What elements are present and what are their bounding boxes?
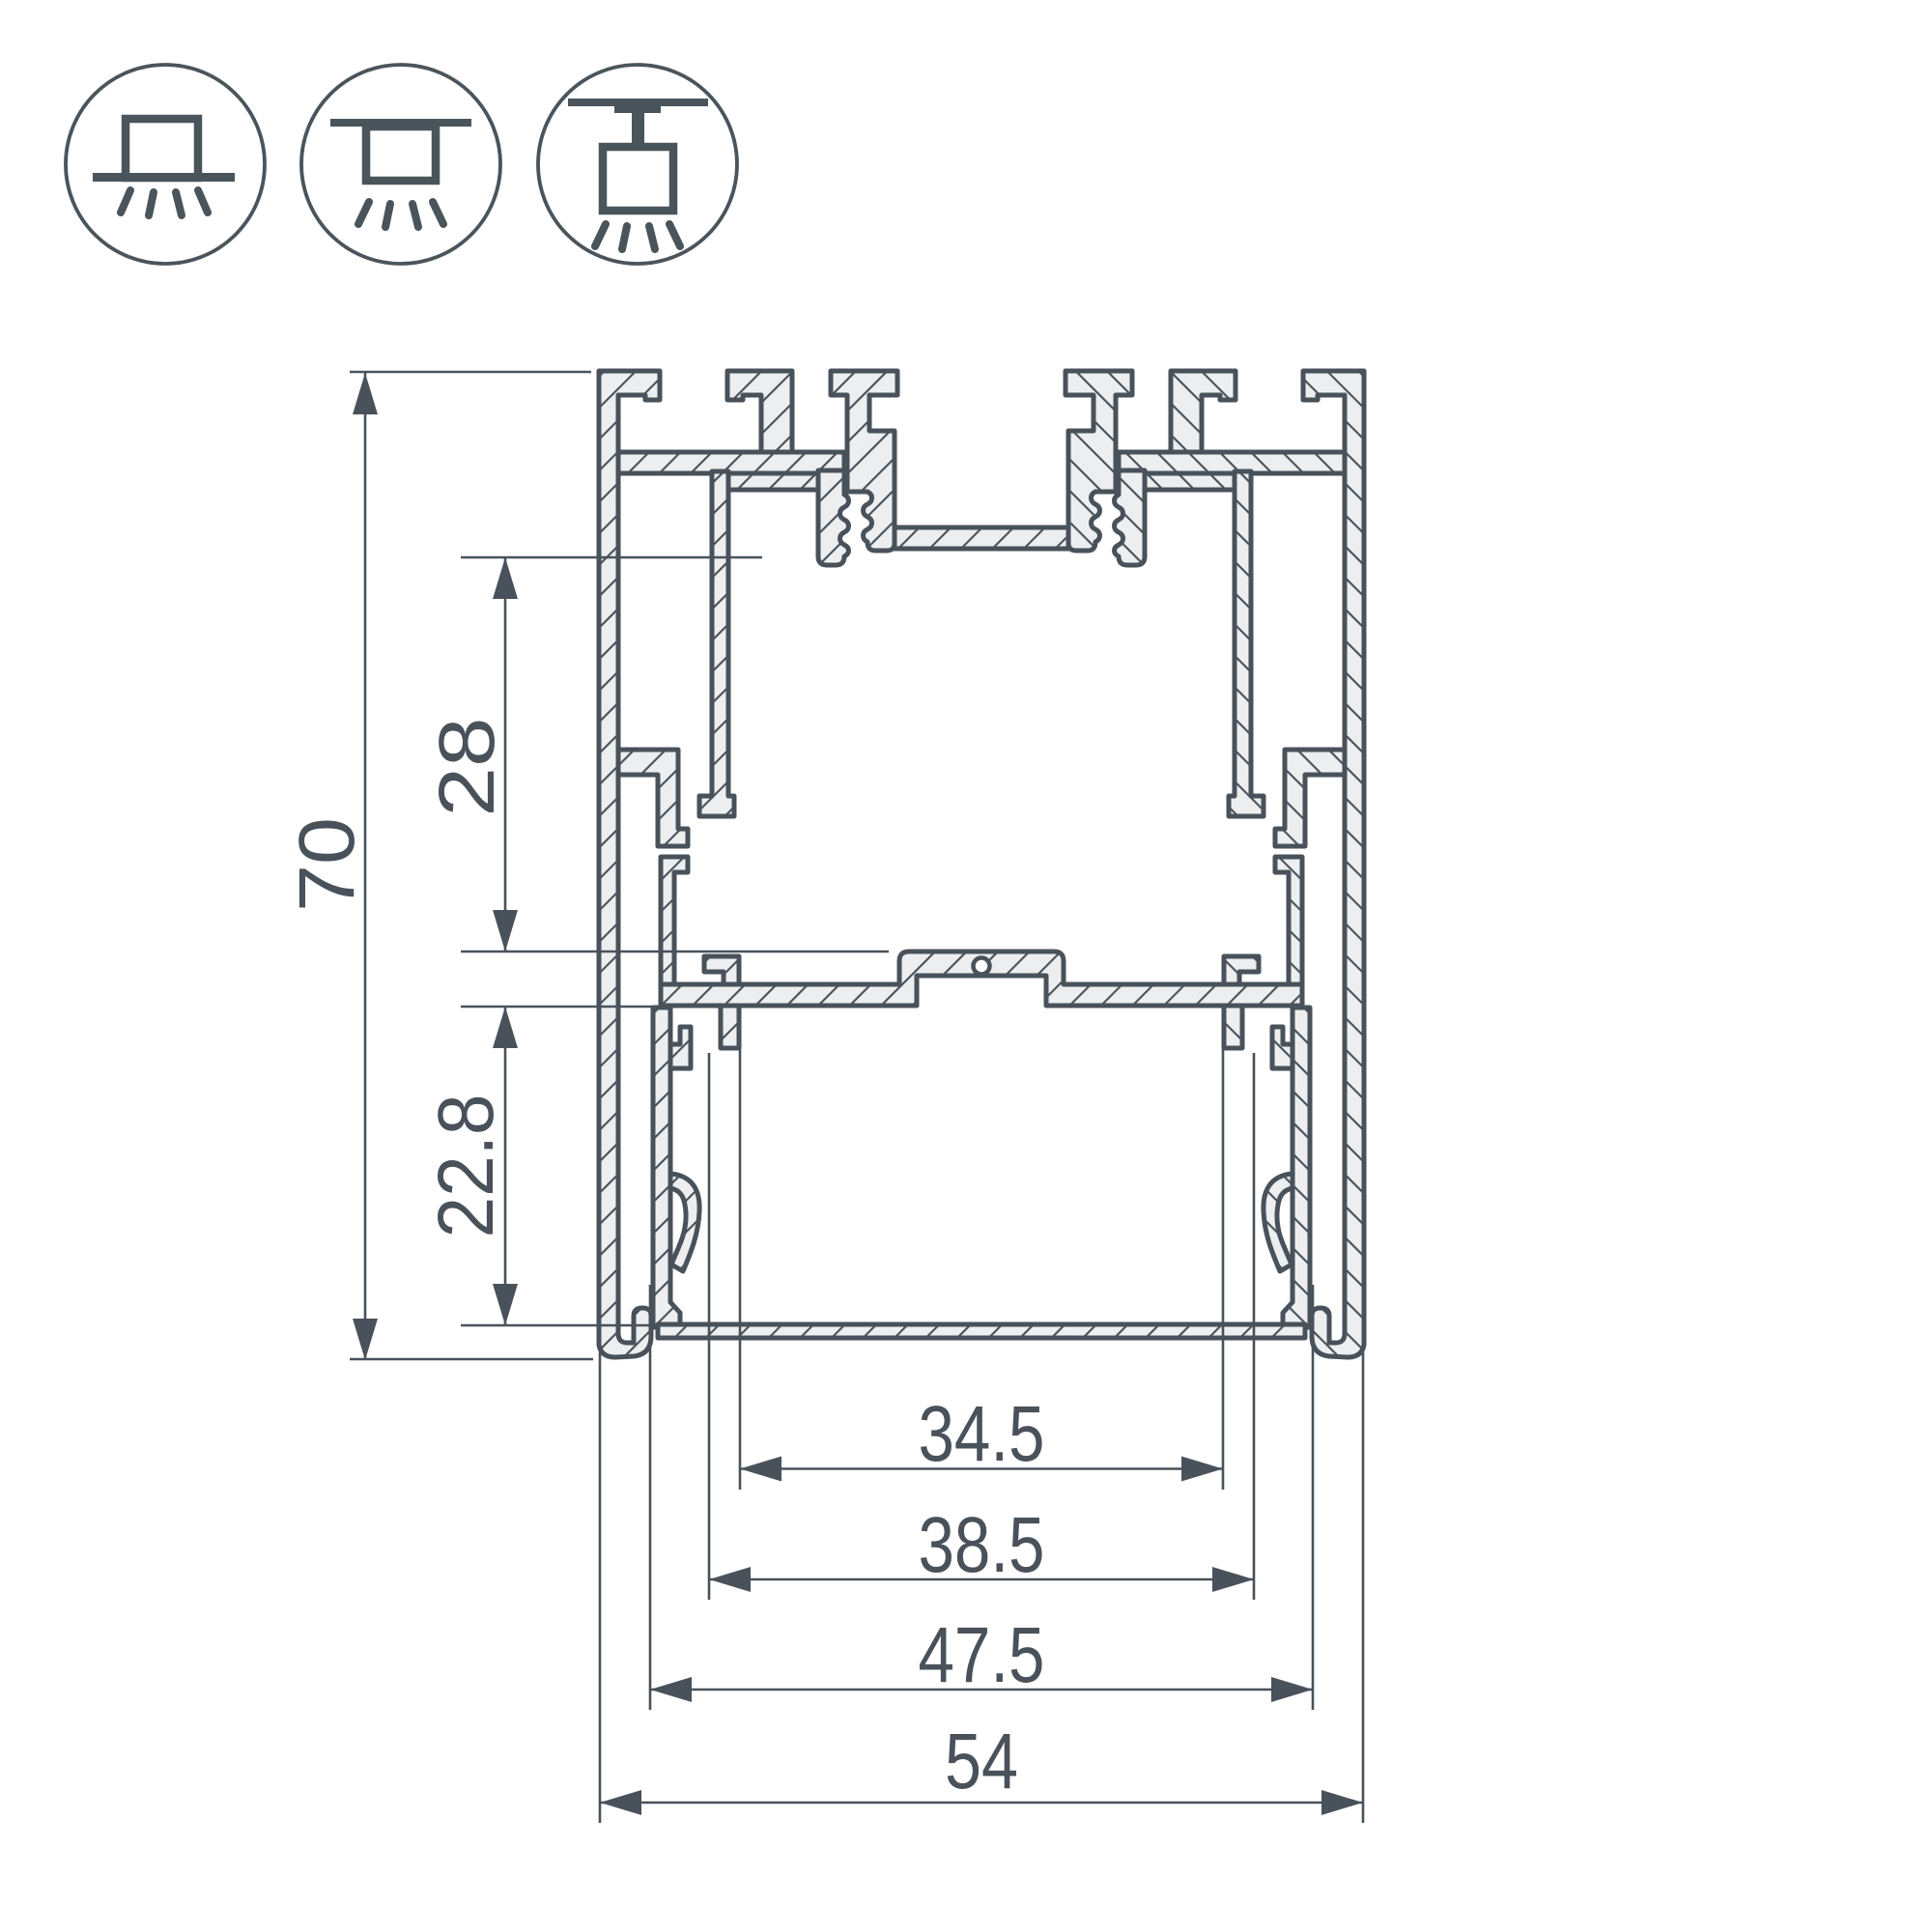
- svg-text:70: 70: [283, 817, 371, 912]
- svg-text:47.5: 47.5: [919, 1611, 1045, 1699]
- svg-text:34.5: 34.5: [919, 1390, 1045, 1478]
- svg-text:38.5: 38.5: [919, 1501, 1045, 1589]
- svg-text:28: 28: [423, 718, 511, 817]
- svg-text:22.8: 22.8: [422, 1094, 510, 1238]
- svg-text:54: 54: [945, 1718, 1018, 1805]
